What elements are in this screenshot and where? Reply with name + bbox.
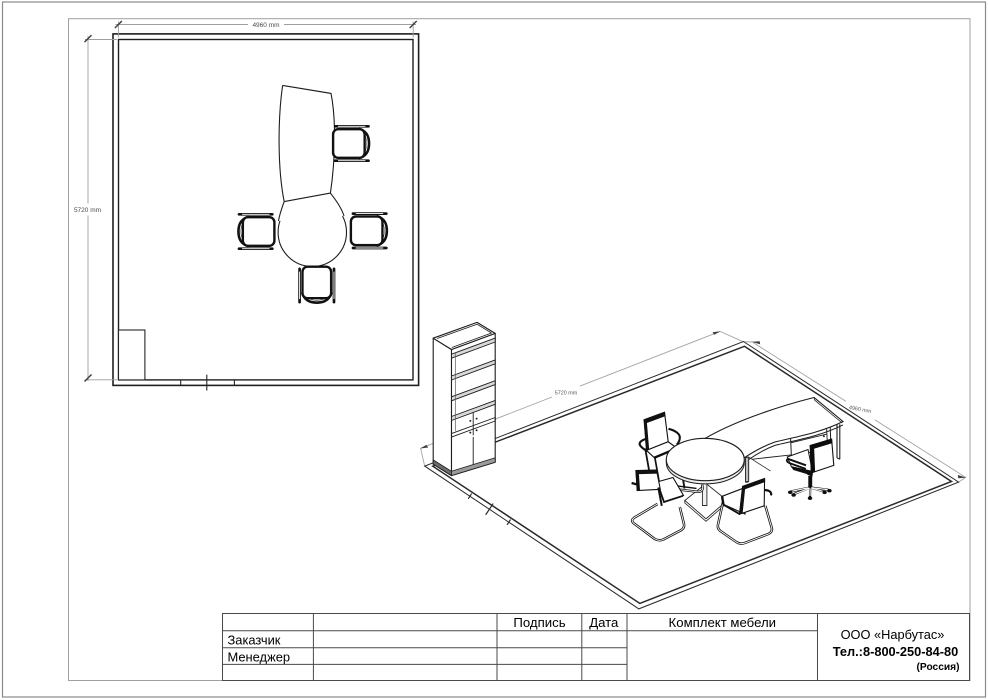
svg-text:Комплект мебели: Комплект мебели	[669, 615, 777, 630]
svg-text:Дата: Дата	[589, 615, 619, 630]
svg-text:5720 mm: 5720 mm	[555, 391, 578, 397]
svg-text:4960 mm: 4960 mm	[252, 22, 279, 29]
svg-text:Менеджер: Менеджер	[228, 649, 291, 664]
svg-text:ООО «Нарбутас»: ООО «Нарбутас»	[841, 627, 945, 642]
svg-text:5720 mm: 5720 mm	[74, 207, 101, 214]
svg-text:(Россия): (Россия)	[917, 662, 960, 673]
svg-text:Подпись: Подпись	[513, 615, 565, 630]
svg-text:Заказчик: Заказчик	[228, 632, 281, 647]
svg-text:Тел.:8-800-250-84-80: Тел.:8-800-250-84-80	[833, 644, 959, 659]
